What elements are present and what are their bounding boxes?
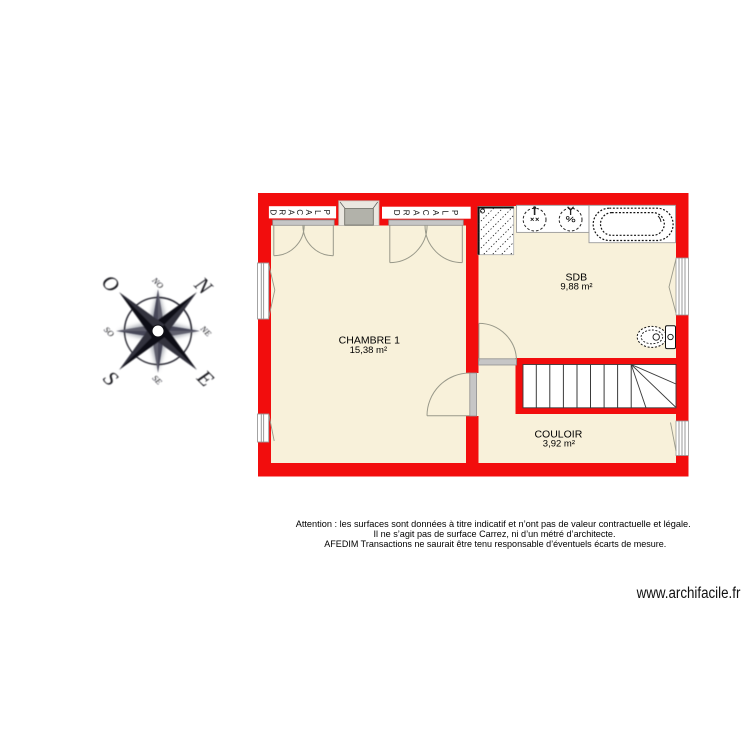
svg-text:D: D — [392, 210, 401, 216]
svg-text:9,88 m²: 9,88 m² — [560, 282, 592, 293]
svg-text:P: P — [450, 210, 459, 215]
svg-text:C: C — [421, 210, 430, 216]
svg-text:15,38 m²: 15,38 m² — [350, 345, 388, 356]
svg-text:3,92 m²: 3,92 m² — [543, 439, 575, 450]
svg-text:AFEDIM Transactions ne saurait: AFEDIM Transactions ne saurait être tenu… — [324, 539, 666, 549]
svg-text:A: A — [431, 210, 440, 216]
svg-text:L: L — [313, 210, 322, 215]
svg-text:Attention : les surfaces sont: Attention : les surfaces sont données à … — [296, 519, 691, 529]
svg-text:R: R — [402, 210, 411, 216]
svg-text:Il ne s’agit pas de surface Ca: Il ne s’agit pas de surface Carrez, ni d… — [374, 529, 616, 539]
svg-text:P: P — [322, 210, 331, 215]
svg-text:C: C — [295, 209, 304, 215]
svg-text:A: A — [286, 210, 295, 216]
svg-text:A: A — [411, 210, 420, 216]
svg-text:R: R — [277, 209, 286, 215]
svg-text:www.archifacile.fr: www.archifacile.fr — [636, 585, 741, 602]
svg-text:A: A — [304, 210, 313, 216]
svg-text:L: L — [441, 210, 450, 215]
svg-text:D: D — [269, 209, 278, 215]
